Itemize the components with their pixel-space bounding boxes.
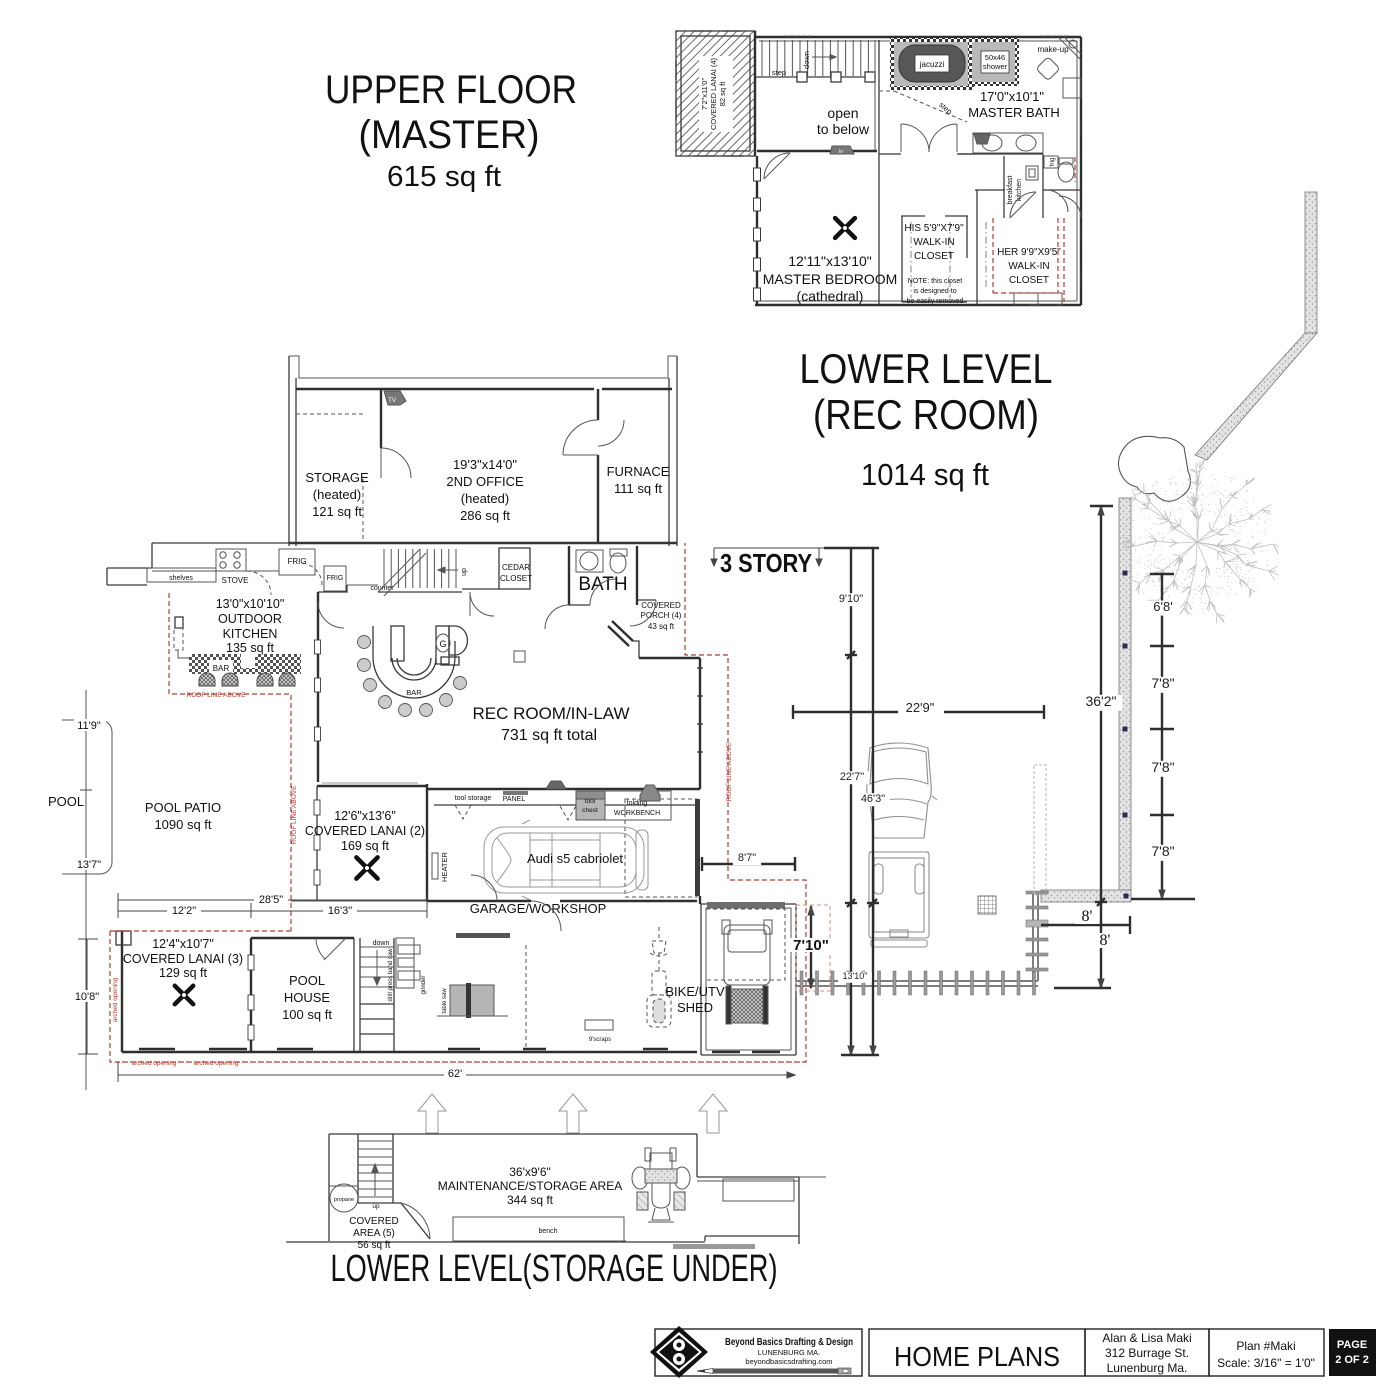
svg-text:PORCH (4): PORCH (4) bbox=[641, 611, 682, 620]
svg-text:MASTER BEDROOM: MASTER BEDROOM bbox=[763, 271, 898, 287]
svg-text:jacuzzi: jacuzzi bbox=[919, 60, 945, 69]
svg-text:propane: propane bbox=[334, 1197, 354, 1203]
svg-text:CEDAR: CEDAR bbox=[502, 563, 530, 572]
svg-text:STORAGE: STORAGE bbox=[305, 470, 369, 485]
svg-text:ROOF LINE ABOVE: ROOF LINE ABOVE bbox=[291, 785, 298, 845]
svg-text:CLOSET: CLOSET bbox=[500, 574, 532, 583]
svg-text:46'3": 46'3" bbox=[861, 793, 885, 805]
svg-text:POOL: POOL bbox=[48, 794, 84, 809]
svg-text:MAINTENANCE/STORAGE AREA: MAINTENANCE/STORAGE AREA bbox=[438, 1179, 622, 1193]
svg-text:615 sq ft: 615 sq ft bbox=[387, 161, 501, 193]
svg-text:13'10": 13'10" bbox=[843, 971, 868, 981]
svg-text:(cathedral): (cathedral) bbox=[797, 288, 864, 304]
svg-text:COVERED LANAI (3): COVERED LANAI (3) bbox=[123, 952, 243, 966]
svg-text:BAR: BAR bbox=[406, 688, 422, 697]
svg-text:62': 62' bbox=[448, 1068, 462, 1080]
svg-text:(REC ROOM): (REC ROOM) bbox=[813, 391, 1039, 438]
svg-text:down: down bbox=[373, 940, 390, 947]
svg-text:CLOSET: CLOSET bbox=[914, 251, 954, 262]
svg-text:arched opening: arched opening bbox=[132, 1060, 177, 1067]
svg-text:arched opening: arched opening bbox=[112, 977, 119, 1022]
svg-text:28'5": 28'5" bbox=[259, 894, 283, 906]
svg-text:KITCHEN: KITCHEN bbox=[223, 627, 278, 641]
svg-text:POOL: POOL bbox=[289, 973, 325, 988]
svg-text:WALK-IN: WALK-IN bbox=[913, 237, 954, 248]
svg-text:step: step bbox=[772, 68, 786, 77]
svg-text:12'6"x13'6": 12'6"x13'6" bbox=[334, 809, 396, 823]
svg-text:Plan #Maki: Plan #Maki bbox=[1236, 1339, 1295, 1353]
svg-text:ROOF LINE ABOVE: ROOF LINE ABOVE bbox=[726, 742, 733, 802]
svg-text:9'scraps: 9'scraps bbox=[589, 1037, 611, 1043]
svg-text:SHED: SHED bbox=[677, 1000, 713, 1015]
svg-text:7'8": 7'8" bbox=[1151, 759, 1174, 775]
svg-text:22'9": 22'9" bbox=[906, 700, 935, 715]
svg-text:HER 9'9"X9'5": HER 9'9"X9'5" bbox=[997, 247, 1061, 258]
svg-text:FRIG: FRIG bbox=[287, 557, 306, 566]
svg-text:13'7": 13'7" bbox=[77, 859, 101, 871]
svg-text:8': 8' bbox=[1082, 908, 1093, 925]
svg-text:43 sq ft: 43 sq ft bbox=[648, 622, 675, 631]
svg-text:7'8": 7'8" bbox=[1151, 675, 1174, 691]
svg-text:G: G bbox=[439, 639, 446, 649]
svg-text:WALK-IN: WALK-IN bbox=[1008, 261, 1049, 272]
svg-text:shelves: shelves bbox=[169, 575, 193, 582]
svg-text:10'8": 10'8" bbox=[75, 991, 99, 1003]
svg-text:drill press band saw: drill press band saw bbox=[388, 948, 394, 1002]
svg-text:17'0"x10'1": 17'0"x10'1" bbox=[980, 89, 1044, 104]
svg-text:make-up: make-up bbox=[1037, 45, 1069, 54]
svg-text:Beyond Basics Drafting & Desig: Beyond Basics Drafting & Design bbox=[725, 1336, 853, 1348]
svg-text:312 Burrage St.: 312 Burrage St. bbox=[1105, 1346, 1189, 1360]
svg-text:12'2": 12'2" bbox=[172, 905, 196, 917]
svg-text:FURNACE: FURNACE bbox=[607, 464, 670, 479]
svg-text:11'9": 11'9" bbox=[77, 720, 101, 732]
svg-text:REC ROOM/IN-LAW: REC ROOM/IN-LAW bbox=[472, 704, 629, 723]
svg-text:is designed to: is designed to bbox=[913, 288, 956, 295]
svg-text:beyondbasicsdrafting.com: beyondbasicsdrafting.com bbox=[745, 1357, 832, 1366]
svg-text:frig: frig bbox=[1049, 157, 1056, 166]
svg-text:PANEL: PANEL bbox=[503, 796, 526, 803]
svg-text:8': 8' bbox=[1100, 932, 1111, 949]
svg-text:TV: TV bbox=[388, 398, 396, 404]
svg-text:FRIG: FRIG bbox=[327, 575, 344, 582]
svg-text:9'10": 9'10" bbox=[839, 593, 863, 605]
svg-text:7'10": 7'10" bbox=[793, 937, 829, 954]
svg-text:56 sq ft: 56 sq ft bbox=[358, 1240, 391, 1251]
svg-text:tool: tool bbox=[585, 798, 596, 805]
svg-text:COVERED LANAI (4): COVERED LANAI (4) bbox=[709, 57, 718, 130]
svg-text:7'2"x11'0": 7'2"x11'0" bbox=[700, 78, 709, 111]
svg-text:(MASTER): (MASTER) bbox=[359, 113, 540, 157]
svg-text:3 STORY: 3 STORY bbox=[720, 548, 812, 578]
svg-text:tool storage: tool storage bbox=[455, 795, 492, 802]
svg-text:AREA (5): AREA (5) bbox=[353, 1228, 395, 1239]
svg-text:table saw: table saw bbox=[442, 988, 448, 1014]
svg-text:50x46: 50x46 bbox=[985, 53, 1005, 62]
svg-text:Lunenburg Ma.: Lunenburg Ma. bbox=[1107, 1361, 1188, 1375]
svg-text:100 sq ft: 100 sq ft bbox=[282, 1007, 332, 1022]
svg-text:COVERED: COVERED bbox=[349, 1216, 398, 1227]
svg-text:344 sq ft: 344 sq ft bbox=[507, 1193, 554, 1207]
svg-text:up: up bbox=[461, 568, 468, 576]
svg-text:NOTE: this closet: NOTE: this closet bbox=[908, 278, 963, 285]
svg-text:ROOF LINE ABOVE: ROOF LINE ABOVE bbox=[187, 692, 247, 699]
svg-text:121 sq ft: 121 sq ft bbox=[312, 504, 362, 519]
svg-text:169 sq ft: 169 sq ft bbox=[341, 839, 389, 853]
svg-text:111 sq ft: 111 sq ft bbox=[614, 481, 662, 496]
svg-text:HIS 5'9"X7'9": HIS 5'9"X7'9" bbox=[904, 223, 964, 234]
svg-text:shower: shower bbox=[983, 62, 1008, 71]
svg-text:22'7": 22'7" bbox=[840, 771, 864, 783]
svg-text:POOL PATIO: POOL PATIO bbox=[145, 800, 221, 815]
svg-text:2ND OFFICE: 2ND OFFICE bbox=[446, 474, 524, 489]
svg-text:19'3"x14'0": 19'3"x14'0" bbox=[453, 457, 517, 472]
svg-text:HEATER: HEATER bbox=[440, 851, 449, 881]
svg-text:breakfast: breakfast bbox=[1007, 176, 1014, 205]
svg-text:Scale: 3/16" = 1'0": Scale: 3/16" = 1'0" bbox=[1217, 1356, 1315, 1370]
svg-text:grinder: grinder bbox=[421, 976, 427, 995]
svg-text:129 sq ft: 129 sq ft bbox=[159, 966, 207, 980]
svg-text:731 sq ft total: 731 sq ft total bbox=[501, 727, 597, 744]
svg-text:6'8': 6'8' bbox=[1153, 599, 1172, 614]
svg-text:2 OF 2: 2 OF 2 bbox=[1335, 1354, 1369, 1366]
svg-text:LOWER LEVEL(STORAGE UNDER): LOWER LEVEL(STORAGE UNDER) bbox=[331, 1248, 778, 1290]
svg-text:12'11"x13'10": 12'11"x13'10" bbox=[788, 253, 872, 269]
svg-text:36'2": 36'2" bbox=[1085, 693, 1116, 709]
svg-text:arched opening: arched opening bbox=[194, 1060, 239, 1067]
svg-text:BIKE/UTV: BIKE/UTV bbox=[665, 984, 725, 999]
svg-text:LOWER LEVEL: LOWER LEVEL bbox=[800, 345, 1053, 392]
svg-text:1090 sq ft: 1090 sq ft bbox=[154, 817, 211, 832]
svg-text:HOME PLANS: HOME PLANS bbox=[894, 1341, 1060, 1372]
svg-text:tv: tv bbox=[839, 149, 843, 155]
svg-text:Alan & Lisa Maki: Alan & Lisa Maki bbox=[1102, 1331, 1191, 1345]
svg-text:STOVE: STOVE bbox=[222, 576, 249, 585]
svg-text:286 sq ft: 286 sq ft bbox=[460, 508, 510, 523]
svg-text:up: up bbox=[372, 1203, 380, 1210]
svg-text:Audi s5 cabriolet: Audi s5 cabriolet bbox=[527, 851, 623, 866]
svg-text:8'7": 8'7" bbox=[738, 852, 756, 864]
svg-text:chest: chest bbox=[582, 807, 598, 814]
svg-text:12'4"x10'7": 12'4"x10'7" bbox=[152, 937, 214, 951]
svg-text:135 sq ft: 135 sq ft bbox=[226, 641, 274, 655]
svg-text:7'8": 7'8" bbox=[1151, 843, 1174, 859]
svg-text:bench: bench bbox=[538, 1228, 557, 1235]
svg-text:13'0"x10'10": 13'0"x10'10" bbox=[216, 597, 285, 611]
svg-text:COVERED: COVERED bbox=[641, 601, 681, 610]
svg-text:CLOSET: CLOSET bbox=[1009, 275, 1049, 286]
svg-text:1014 sq ft: 1014 sq ft bbox=[861, 457, 989, 492]
svg-text:OUTDOOR: OUTDOOR bbox=[218, 612, 282, 626]
svg-text:GARAGE/WORKSHOP: GARAGE/WORKSHOP bbox=[470, 901, 607, 916]
svg-text:be easily removed: be easily removed bbox=[907, 298, 964, 305]
svg-text:to below: to below bbox=[817, 121, 870, 137]
svg-text:COVERED LANAI (2): COVERED LANAI (2) bbox=[305, 824, 425, 838]
svg-text:UPPER FLOOR: UPPER FLOOR bbox=[325, 68, 577, 112]
svg-text:MASTER BATH: MASTER BATH bbox=[968, 105, 1060, 120]
svg-text:open: open bbox=[827, 105, 858, 121]
svg-text:(heated): (heated) bbox=[313, 487, 361, 502]
svg-text:PAGE: PAGE bbox=[1337, 1339, 1367, 1351]
svg-text:LUNENBURG MA.: LUNENBURG MA. bbox=[758, 1348, 821, 1357]
svg-text:36'x9'6": 36'x9'6" bbox=[509, 1165, 551, 1179]
svg-text:WORKBENCH: WORKBENCH bbox=[614, 810, 660, 817]
svg-text:16'3": 16'3" bbox=[328, 905, 352, 917]
svg-text:down: down bbox=[802, 51, 811, 69]
svg-text:BAR: BAR bbox=[213, 664, 230, 673]
svg-text:82 sq ft: 82 sq ft bbox=[718, 81, 727, 107]
svg-text:HOUSE: HOUSE bbox=[284, 990, 331, 1005]
svg-text:(heated): (heated) bbox=[461, 491, 509, 506]
svg-text:BATH: BATH bbox=[578, 574, 627, 595]
